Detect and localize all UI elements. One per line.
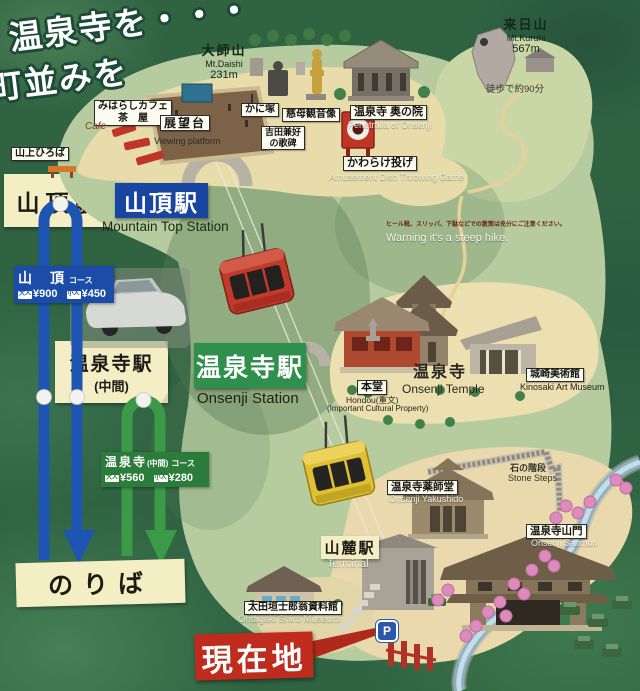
mt-daishi-name: 大師山: [192, 44, 256, 59]
mt-daishi-romaji: Mt.Daishi: [192, 59, 256, 69]
terminal-en-label: Terminal: [327, 558, 369, 570]
current-location-sign: 現在地: [194, 631, 313, 680]
fare-top-adult-price: ¥900: [33, 288, 57, 300]
fare-top-child-badge: 小人: [67, 291, 81, 299]
jibo-kannon-label: 慈母観音像: [282, 108, 340, 122]
onsenji-station-en: Onsenji Station: [197, 391, 299, 408]
mountain-top-station-sign: 山頂駅: [115, 183, 208, 218]
fare-sign-mid-course: 温泉寺(中間)コース 大人¥560 小人¥280: [101, 452, 209, 487]
fare-mid-child-price: ¥280: [169, 472, 193, 484]
cafe-label-line2: 茶 屋: [98, 113, 168, 125]
fare-mid-adult-badge: 大人: [105, 475, 119, 483]
mt-daishi-label: 大師山 Mt.Daishi 231m: [192, 44, 256, 82]
fare-top-course-name: 山 頂: [18, 270, 66, 286]
yakushido-label: 温泉寺薬師堂: [387, 480, 458, 495]
cafe-label-line1: みはらしカフェ: [98, 101, 168, 113]
mt-kuruhi-label: 来日山 Mt.Kuruhi 567m: [490, 18, 562, 56]
hondou-en2-label: (Important Cultural Property): [327, 405, 428, 414]
shiro-museum-label: 太田垣士郎翁資料館: [244, 601, 342, 615]
summit-plaza-label: 山上ひろば: [11, 147, 69, 161]
sanmon-label: 温泉寺山門: [526, 524, 587, 539]
ropeway-map-sign: 山頂駅 温泉寺駅 (中間): [0, 0, 640, 691]
yakushido-en-label: Onsenji Yakushido: [389, 495, 463, 505]
mt-kuruhi-romaji: Mt.Kuruhi: [490, 33, 562, 43]
yoshida-monument-line2: の歌碑: [265, 138, 301, 149]
terminal-panel: 山麓駅: [321, 536, 379, 559]
yoshida-monument-label: 吉田兼好 の歌碑: [261, 126, 305, 150]
viewing-platform-label: 展望台: [160, 115, 210, 131]
yoshida-monument-line1: 吉田兼好: [265, 127, 301, 138]
warning-jp: ヒール靴、スリッパ、下駄などでの散策は充分にご注意ください。: [386, 222, 566, 229]
art-museum-label: 城崎美術館: [526, 368, 584, 382]
sanmon-en-label: Onsenji Sanmon: [531, 539, 598, 549]
kanizuka-label: かに塚: [241, 103, 279, 117]
walk-time-note: 徒歩で約90分: [486, 85, 544, 95]
mountain-top-station-en: Mountain Top Station: [102, 220, 229, 235]
fare-mid-adult-price: ¥560: [120, 472, 144, 484]
shiro-museum-en-label: Ohtagaki Shiro Museum: [238, 615, 340, 625]
fare-mid-course-suffix: コース: [171, 459, 195, 468]
onsenji-temple-label: 温泉寺: [413, 364, 467, 382]
fare-top-child-price: ¥450: [82, 288, 106, 300]
okunoin-label: 温泉寺 奥の院: [350, 105, 427, 120]
kawarake-en-label: Amusement Dish Throwing Game: [329, 173, 464, 183]
viewing-platform-en-label: Viewing platform: [154, 137, 220, 147]
cafe-en-label: Cafe: [85, 121, 106, 132]
fare-mid-child-badge: 小人: [154, 475, 168, 483]
onsenji-station-sign: 温泉寺駅: [194, 343, 306, 388]
fare-mid-course-name: 温泉寺: [105, 455, 147, 469]
fare-sign-top-course: 山 頂コース 大人¥900 小人¥450: [14, 266, 114, 303]
stone-steps-en-label: Stone Steps: [508, 474, 557, 484]
mt-daishi-elevation: 231m: [192, 69, 256, 82]
current-location-pointer: [308, 627, 380, 660]
hondou-label: 本堂: [357, 380, 387, 395]
boarding-area-panel: のりば: [15, 559, 185, 607]
okunoin-en-label: Penetralia of Onsenji: [348, 121, 432, 131]
mt-kuruhi-elevation: 567m: [490, 43, 562, 56]
warning-en: Warning it's a steep hike.: [386, 232, 508, 244]
kawarake-label: かわらけ投げ: [343, 156, 417, 171]
parking-icon: P: [376, 620, 398, 642]
route-top-track: [37, 197, 96, 565]
onsenji-temple-en-label: Onsenji Temple: [402, 383, 485, 396]
fare-top-course-suffix: コース: [69, 276, 93, 285]
fare-top-adult-badge: 大人: [18, 291, 32, 299]
mt-kuruhi-name: 来日山: [490, 18, 562, 33]
art-museum-en-label: Kinosaki Art Museum: [520, 383, 605, 393]
fare-mid-course-mid: (中間): [147, 459, 168, 468]
